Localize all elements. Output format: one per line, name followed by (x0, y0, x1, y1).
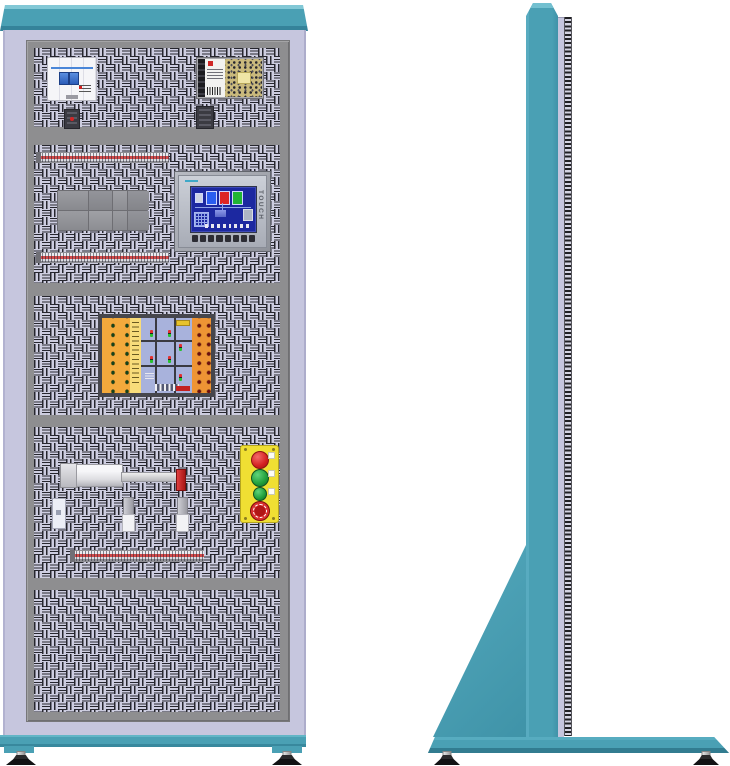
button-label (268, 488, 275, 495)
terminal-rail-bottom (70, 550, 204, 562)
foot-base (6, 755, 36, 765)
hmi-screen-button (205, 224, 208, 228)
emergency-stop-button (250, 501, 270, 521)
contactor-block (58, 211, 88, 230)
power-supply (196, 57, 264, 99)
button-label (268, 452, 275, 459)
station-screw (272, 517, 275, 520)
front-foot-left (6, 751, 36, 765)
psu-label-text-lines (207, 69, 223, 79)
push-button-station (240, 445, 279, 523)
station-screw (272, 448, 275, 451)
mini-traffic-signal (150, 356, 153, 363)
breaker-toggle-1 (59, 72, 69, 85)
hmi-function-key (200, 235, 206, 242)
contactor-block (89, 211, 112, 230)
hmi-function-key (216, 235, 222, 242)
hmi-pipe-horizontal (195, 207, 251, 208)
psu-barcode (207, 87, 221, 95)
board-legend-strip (130, 318, 141, 393)
cylinder-body (76, 464, 123, 487)
circuit-breaker (47, 57, 97, 101)
red-label (176, 386, 190, 391)
side-gusset (433, 545, 526, 737)
sensor-1 (122, 497, 133, 530)
hmi-screen-button-row (205, 224, 249, 228)
hmi-function-key (233, 235, 239, 242)
hmi-function-key (192, 235, 198, 242)
breaker-blue-bar (51, 67, 93, 69)
mini-traffic-signal (168, 356, 171, 363)
cylinder-rod-tip (176, 469, 186, 491)
led-column-green (102, 318, 130, 393)
cabinet-top-cap (0, 5, 308, 31)
led-column-red (192, 318, 211, 393)
mini-traffic-signal (179, 344, 182, 351)
hmi-screen-button (229, 224, 232, 228)
hmi-function-key (249, 235, 255, 242)
hmi-bezel: TOUCH (178, 175, 267, 248)
hmi-brand-mark (185, 180, 198, 182)
road-vertical-1 (155, 318, 157, 393)
side-column (526, 3, 558, 737)
sensor-1-bracket (122, 514, 135, 532)
connector-block-2 (196, 106, 214, 129)
hmi-function-key (225, 235, 231, 242)
hmi-function-key (241, 235, 247, 242)
psu-transformer (237, 72, 251, 84)
road-horizontal-1 (141, 340, 192, 342)
illustration-stage: TOUCH (0, 0, 730, 766)
mini-traffic-signal (179, 374, 182, 381)
station-screw (244, 517, 247, 520)
contactor-block (113, 211, 127, 230)
connector-block-1 (64, 109, 80, 129)
hmi-unit-small (195, 193, 203, 203)
breaker-indicator (79, 86, 82, 89)
traffic-light-board (98, 314, 215, 397)
hmi-touch-label: TOUCH (257, 190, 264, 221)
component-cluster (145, 372, 154, 379)
connector-red-dot (70, 117, 74, 121)
mini-traffic-signal (150, 330, 153, 337)
hmi-screen-button (217, 224, 220, 228)
side-panel-edge-stripes (564, 17, 572, 736)
terminal-module-window (56, 510, 61, 515)
hmi-panel: TOUCH (174, 171, 271, 252)
side-base-plate (427, 737, 730, 753)
hmi-vessel-right (243, 209, 253, 221)
side-foot-left (434, 751, 460, 765)
hmi-screen-button (240, 224, 243, 228)
foot-base (434, 755, 460, 765)
hmi-tank-red (219, 191, 230, 205)
breaker-toggle-2 (69, 72, 79, 85)
board-road-map (141, 318, 192, 393)
foot-base (693, 755, 719, 765)
hmi-screen-button (211, 224, 214, 228)
hmi-tank-green (232, 191, 243, 205)
front-base-strip (0, 735, 306, 747)
road-vertical-2 (174, 318, 176, 393)
cylinder-rod (121, 472, 180, 482)
road-horizontal-2 (141, 365, 192, 367)
hmi-function-keys (192, 235, 255, 242)
contactor-block (89, 191, 112, 210)
contactor-block (113, 191, 127, 210)
contactor-group (57, 190, 147, 231)
hmi-screen-button (246, 224, 249, 228)
station-screw (244, 448, 247, 451)
foot-base (272, 755, 302, 765)
mini-traffic-signal (168, 330, 171, 337)
green-button-1 (251, 469, 269, 487)
yellow-bar (176, 320, 190, 326)
terminal-rail-top (36, 152, 169, 163)
contactor-block (58, 191, 88, 210)
front-foot-right (272, 751, 302, 765)
red-button (251, 451, 269, 469)
green-button-2 (253, 487, 267, 501)
contactor-block (128, 211, 149, 230)
psu-logo-mark (208, 61, 213, 66)
psu-terminals (198, 59, 205, 97)
contactor-block (128, 191, 149, 210)
sensor-2 (176, 497, 187, 530)
terminal-module (52, 498, 66, 529)
hmi-screen-button (223, 224, 226, 228)
terminal-rail-middle (36, 252, 169, 263)
hmi-screen (190, 186, 257, 233)
hmi-tank-blue (206, 191, 217, 205)
hmi-machine-block (215, 210, 226, 217)
hmi-function-key (208, 235, 214, 242)
button-label (268, 470, 275, 477)
side-foot-right (693, 751, 719, 765)
hmi-screen-button (234, 224, 237, 228)
breaker-din-clip (66, 95, 78, 99)
sensor-2-bracket (176, 514, 189, 532)
panel-section-5 (34, 590, 280, 712)
